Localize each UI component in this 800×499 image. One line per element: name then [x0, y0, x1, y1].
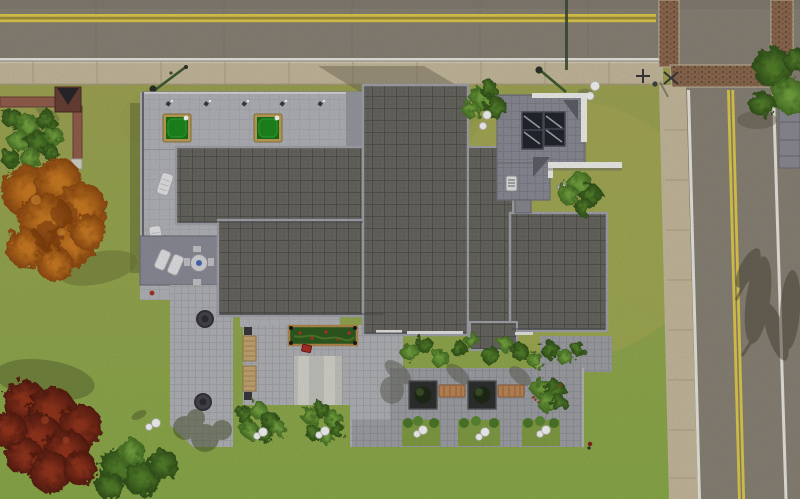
texture-overlay: [0, 0, 800, 499]
game-viewport[interactable]: [0, 0, 800, 499]
